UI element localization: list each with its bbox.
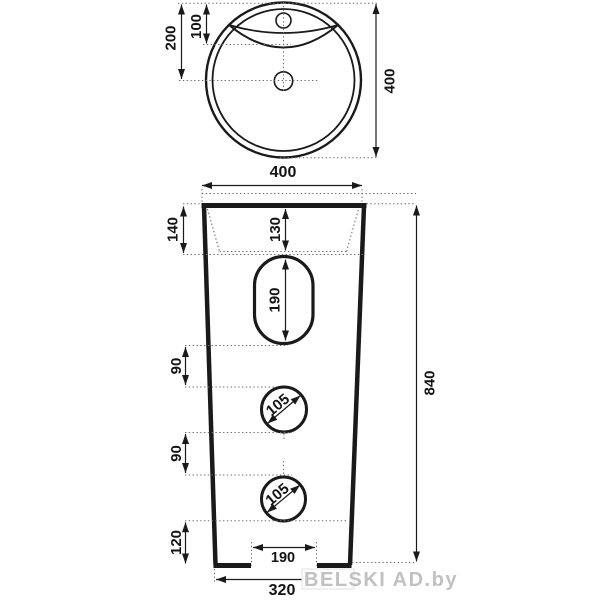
background [0, 0, 600, 600]
drawing-page: 100 200 400 400 140 130 [0, 0, 600, 600]
dim-label-basin-depth: 130 [267, 217, 284, 242]
dim-label-top-width: 400 [270, 164, 297, 181]
dim-label-notch-width: 190 [271, 550, 295, 566]
drawing-canvas: 100 200 400 400 140 130 [0, 0, 600, 600]
dim-label-slot-height: 190 [266, 287, 283, 312]
dim-label-total-height: 840 [421, 370, 438, 395]
dim-label-overflow-offset: 100 [188, 14, 205, 39]
dim-label-rim-height: 140 [164, 217, 181, 242]
dim-label-diameter: 400 [381, 68, 398, 93]
dim-label-base-height: 120 [168, 530, 185, 555]
dim-label-upper-gap: 90 [168, 358, 185, 375]
watermark: BELSKI AD.by [302, 569, 458, 591]
dim-label-lower-gap: 90 [168, 445, 185, 462]
watermark-text: BELSKI AD.by [304, 569, 458, 591]
dim-label-bottom-width: 320 [269, 582, 296, 599]
dim-label-bowl-offset: 200 [162, 25, 179, 50]
